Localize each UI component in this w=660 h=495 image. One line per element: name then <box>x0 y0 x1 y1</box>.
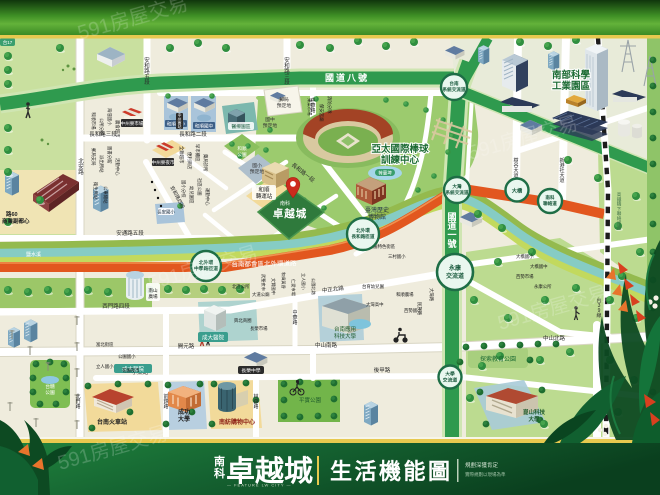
svg-text:系統交流道: 系統交流道 <box>443 86 466 93</box>
svg-text:安和路五段: 安和路五段 <box>144 56 150 86</box>
svg-text:藥局診所: 藥局診所 <box>202 154 209 172</box>
svg-text:預定地: 預定地 <box>250 168 265 175</box>
svg-text:興北商圈: 興北商圈 <box>234 317 252 324</box>
svg-text:永康: 永康 <box>448 264 462 272</box>
svg-text:— FEATURE LW CITY —: — FEATURE LW CITY — <box>227 483 292 488</box>
svg-text:長和路二段: 長和路二段 <box>179 130 207 138</box>
svg-text:預定地: 預定地 <box>263 122 278 129</box>
svg-text:運動中心: 運動中心 <box>204 188 211 206</box>
svg-text:消防分隊: 消防分隊 <box>326 96 333 114</box>
svg-text:國中: 國中 <box>265 116 275 123</box>
svg-text:大灣高中: 大灣高中 <box>366 301 384 308</box>
svg-text:文賢國中: 文賢國中 <box>270 278 277 295</box>
svg-text:系統交流道: 系統交流道 <box>446 189 469 196</box>
svg-text:科: 科 <box>214 466 225 480</box>
svg-text:郵局: 郵局 <box>279 96 289 103</box>
svg-text:活動中心: 活動中心 <box>114 158 121 176</box>
svg-text:南: 南 <box>214 454 225 468</box>
svg-text:立人國小: 立人國小 <box>300 273 307 291</box>
svg-text:訓練中心: 訓練中心 <box>381 154 420 166</box>
svg-text:生活機能圖: 生活機能圖 <box>330 459 453 484</box>
svg-text:實際規劃以現場為準: 實際規劃以現場為準 <box>465 471 506 478</box>
svg-text:台17: 台17 <box>3 39 13 46</box>
svg-text:工業園區: 工業園區 <box>552 80 591 92</box>
svg-text:安通路五段: 安通路五段 <box>116 229 144 237</box>
svg-text:聯絡道: 聯絡道 <box>543 200 557 207</box>
svg-text:荷蘭埤: 荷蘭埤 <box>378 170 392 177</box>
svg-text:亞太國際棒球: 亞太國際棒球 <box>371 143 429 155</box>
svg-text:規劃深獲肯定: 規劃深獲肯定 <box>465 461 499 469</box>
svg-text:中州寮站: 中州寮站 <box>178 113 182 130</box>
svg-text:中山南路: 中山南路 <box>315 341 338 349</box>
svg-text:大道公廟: 大道公廟 <box>252 291 270 298</box>
svg-text:永康公所: 永康公所 <box>534 283 552 290</box>
svg-text:農會超市: 農會超市 <box>114 120 121 138</box>
svg-text:幼兒園區: 幼兒園區 <box>188 186 195 204</box>
svg-text:西門路四段: 西門路四段 <box>102 302 130 310</box>
svg-text:平實公園: 平實公園 <box>299 396 322 404</box>
svg-text:中州寮市場: 中州寮市場 <box>121 120 144 127</box>
svg-text:公車總站: 公車總站 <box>102 186 109 204</box>
svg-text:仁愛市場: 仁愛市場 <box>290 279 297 297</box>
svg-text:卓越城: 卓越城 <box>273 207 308 220</box>
svg-text:路60: 路60 <box>6 210 18 218</box>
svg-text:南部科學: 南部科學 <box>552 69 591 81</box>
svg-text:便利商店: 便利商店 <box>186 152 193 170</box>
svg-text:花園夜市: 花園夜市 <box>122 367 140 374</box>
svg-text:安和路三段: 安和路三段 <box>284 56 290 86</box>
svg-text:圖書分館: 圖書分館 <box>106 146 113 164</box>
svg-text:和順: 和順 <box>237 145 247 152</box>
svg-text:成功: 成功 <box>178 408 190 416</box>
svg-text:國小: 國小 <box>252 162 262 169</box>
svg-text:大學: 大學 <box>445 371 455 378</box>
svg-text:交流道: 交流道 <box>443 377 458 384</box>
svg-text:西勢市場: 西勢市場 <box>516 273 534 280</box>
svg-text:國道一號: 國道一號 <box>447 212 456 249</box>
svg-text:鹽水溪: 鹽水溪 <box>26 251 41 258</box>
svg-text:台南應用: 台南應用 <box>334 325 356 333</box>
svg-text:後甲路: 後甲路 <box>374 366 391 374</box>
svg-text:公園北路: 公園北路 <box>310 278 317 296</box>
svg-text:成大醫院: 成大醫院 <box>202 334 225 342</box>
svg-text:立人國小: 立人國小 <box>96 363 114 370</box>
svg-text:衛生所站: 衛生所站 <box>92 182 99 200</box>
svg-text:林森路: 林森路 <box>253 393 258 410</box>
svg-text:南科: 南科 <box>280 200 290 207</box>
svg-text:南紡購物中心: 南紡購物中心 <box>219 418 255 426</box>
svg-text:北外環: 北外環 <box>356 227 370 234</box>
svg-text:和順: 和順 <box>258 186 270 194</box>
svg-text:新港社大道: 新港社大道 <box>559 157 564 184</box>
svg-text:國道八號: 國道八號 <box>325 72 369 83</box>
svg-text:和順市場: 和順市場 <box>90 112 97 130</box>
svg-text:中州寮夜市: 中州寮夜市 <box>152 159 175 166</box>
svg-text:富北街區: 富北街區 <box>96 341 114 348</box>
svg-text:派出所站: 派出所站 <box>98 155 105 173</box>
svg-text:和順國中: 和順國中 <box>195 123 214 130</box>
svg-text:早市攤區: 早市攤區 <box>194 144 201 162</box>
svg-text:三村國小: 三村國小 <box>388 253 406 260</box>
svg-text:公所分處: 公所分處 <box>98 118 105 136</box>
svg-text:公園國小: 公園國小 <box>118 353 136 360</box>
svg-text:中山北路: 中山北路 <box>543 334 566 342</box>
svg-text:臺灣歷史: 臺灣歷史 <box>365 206 389 214</box>
svg-text:長榮中學: 長榮中學 <box>241 367 260 374</box>
svg-text:長榮市場: 長榮市場 <box>250 325 268 332</box>
svg-text:大橋: 大橋 <box>512 187 523 195</box>
svg-text:轉運站: 轉運站 <box>256 192 273 200</box>
svg-text:商業副都心: 商業副都心 <box>2 217 30 225</box>
svg-text:大學: 大學 <box>528 415 540 423</box>
svg-text:大橋國中: 大橋國中 <box>530 263 548 270</box>
svg-text:民族路: 民族路 <box>416 302 423 316</box>
svg-text:北安路: 北安路 <box>78 157 84 176</box>
svg-text:全聯超市: 全聯超市 <box>178 146 185 164</box>
svg-text:探索教育公園: 探索教育公園 <box>480 355 516 363</box>
svg-text:大灣: 大灣 <box>452 183 462 190</box>
svg-text:北區公所: 北區公所 <box>232 283 250 290</box>
svg-text:大灣路: 大灣路 <box>428 288 435 302</box>
svg-text:科技大學: 科技大學 <box>334 332 357 340</box>
svg-text:高鐵橋下聯絡道路: 高鐵橋下聯絡道路 <box>617 191 622 232</box>
svg-text:大學: 大學 <box>178 415 190 423</box>
svg-text:樹谷大道: 樹谷大道 <box>513 157 518 179</box>
svg-text:台糖: 台糖 <box>45 383 55 390</box>
svg-text:武聖夜市: 武聖夜市 <box>260 274 267 291</box>
svg-text:社區公園: 社區公園 <box>196 178 203 196</box>
svg-text:和緯黃昏: 和緯黃昏 <box>280 272 287 289</box>
svg-text:大橋國小: 大橋國小 <box>516 253 534 260</box>
svg-text:國小分校: 國小分校 <box>180 180 187 198</box>
svg-text:和順農場: 和順農場 <box>396 291 414 298</box>
svg-text:郵局支局: 郵局支局 <box>90 148 97 166</box>
svg-text:台南: 台南 <box>449 80 459 87</box>
svg-text:前鋒路: 前鋒路 <box>163 393 168 410</box>
svg-text:海佃國小: 海佃國小 <box>106 108 113 126</box>
svg-text:開元路: 開元路 <box>178 342 195 350</box>
svg-text:長和路匝道: 長和路匝道 <box>352 233 375 240</box>
svg-text:長安國小: 長安國小 <box>157 209 175 216</box>
svg-text:保安宮廟: 保安宮廟 <box>318 104 325 122</box>
svg-text:果菜市場: 果菜市場 <box>306 98 313 116</box>
svg-text:預定地: 預定地 <box>277 102 292 109</box>
svg-text:醫療園區: 醫療園區 <box>231 123 250 130</box>
svg-text:南科: 南科 <box>545 194 555 201</box>
svg-text:公園: 公園 <box>45 390 55 396</box>
svg-text:北門路: 北門路 <box>75 393 80 410</box>
svg-text:交流道: 交流道 <box>446 272 464 280</box>
svg-text:台育幼兒園: 台育幼兒園 <box>362 283 385 290</box>
svg-text:台南火車站: 台南火車站 <box>97 418 127 426</box>
svg-text:崑山科技: 崑山科技 <box>523 408 546 416</box>
svg-text:中華路: 中華路 <box>292 309 297 326</box>
